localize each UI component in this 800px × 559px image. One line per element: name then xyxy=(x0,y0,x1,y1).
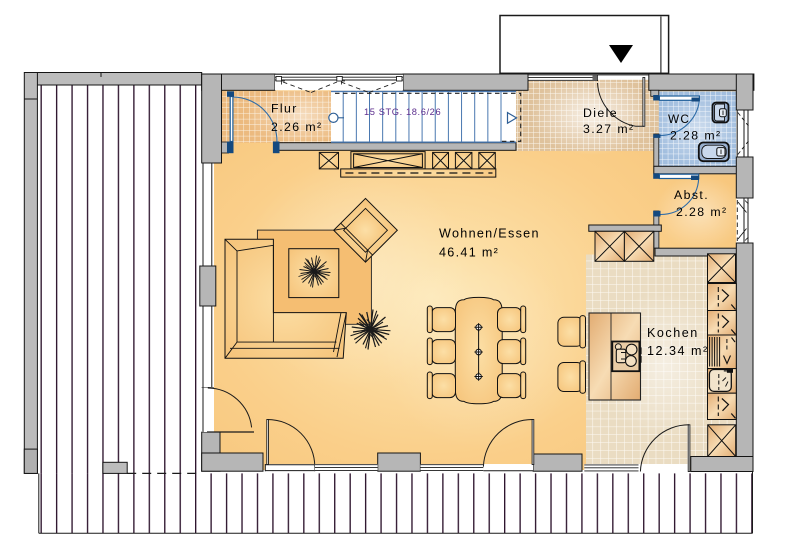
svg-text:46.41 m²: 46.41 m² xyxy=(439,246,499,260)
svg-text:Kochen: Kochen xyxy=(647,326,699,340)
svg-text:3.27 m²: 3.27 m² xyxy=(583,122,635,136)
svg-text:Diele: Diele xyxy=(583,106,618,120)
svg-text:2.28 m²: 2.28 m² xyxy=(670,129,722,143)
svg-text:Wohnen/Essen: Wohnen/Essen xyxy=(439,227,540,241)
svg-text:15 STG. 18.6/26: 15 STG. 18.6/26 xyxy=(364,107,441,117)
svg-text:WC: WC xyxy=(668,112,690,126)
svg-text:12.34 m²: 12.34 m² xyxy=(647,344,709,358)
svg-text:Flur: Flur xyxy=(271,102,298,116)
svg-text:2.26 m²: 2.26 m² xyxy=(271,120,323,134)
svg-text:2.28 m²: 2.28 m² xyxy=(676,205,728,219)
svg-text:Abst.: Abst. xyxy=(674,188,709,202)
